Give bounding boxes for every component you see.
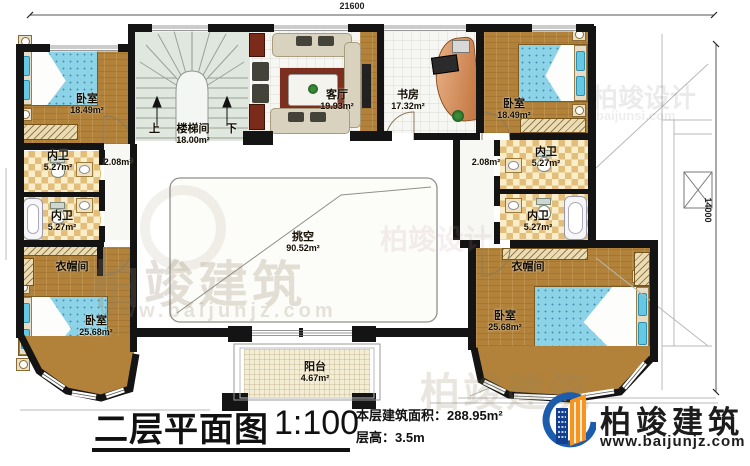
- pillow: [21, 80, 30, 99]
- bed-mattress: [535, 287, 636, 351]
- closet-hatch: [634, 252, 650, 286]
- plan-title: 二层平面图: [94, 402, 269, 451]
- room-area: 90.52m²: [286, 243, 320, 253]
- sofa-cushion: [288, 112, 304, 122]
- bathtub-icon: [23, 198, 43, 240]
- toilet-icon: [536, 198, 551, 219]
- label-void: 挑空 90.52m²: [263, 231, 343, 253]
- floor-hall-left: [104, 144, 131, 240]
- closet-hatch: [22, 258, 34, 286]
- toilet-icon: [50, 156, 65, 177]
- plant-icon: [452, 110, 464, 122]
- closet-hatch: [22, 244, 98, 256]
- pillow: [638, 322, 647, 345]
- plan-scale: 1:100: [274, 404, 359, 443]
- floor-stairwell: [134, 31, 250, 141]
- nightstand: [572, 104, 586, 117]
- floor-hall-right: [460, 140, 494, 240]
- pillow: [21, 56, 30, 75]
- bed-headboard: [636, 287, 649, 351]
- pillow: [638, 293, 647, 316]
- brand-logo-icon: [542, 390, 596, 452]
- closet-hatch: [502, 248, 588, 260]
- bed-top-right: [518, 44, 588, 102]
- floor-height-line: 层高：3.5m: [356, 427, 425, 446]
- sofa-cushion: [318, 36, 334, 46]
- pillow: [21, 329, 30, 350]
- printer-icon: [452, 40, 470, 53]
- nightstand: [632, 354, 646, 367]
- wardrobe-hatch: [520, 118, 586, 133]
- cabinet: [249, 104, 265, 130]
- sink-icon: [76, 162, 93, 177]
- bathtub-icon: [564, 196, 587, 240]
- nightstand: [18, 35, 32, 48]
- bed-mattress: [519, 45, 574, 101]
- tv-icon: [362, 64, 371, 108]
- floorplan-page: 柏竣建筑 www.baijunjz.com 柏竣设计 baijunsi.com …: [0, 0, 750, 466]
- bed-sheet: [32, 297, 71, 355]
- bed-bottom-right: [534, 286, 650, 352]
- watermark-logo-ghost: [140, 185, 226, 271]
- floor-area-line: 本层建筑面积：288.95m²: [356, 405, 503, 424]
- wardrobe-hatch: [18, 124, 78, 140]
- sink-icon: [505, 198, 522, 213]
- nightstand: [16, 358, 30, 371]
- bed-headboard: [19, 51, 32, 105]
- floor-balcony: [244, 349, 370, 397]
- watermark-design: 柏竣设计: [592, 78, 696, 115]
- plant-icon: [308, 84, 318, 94]
- brand-site: www.baijunjz.com: [600, 433, 745, 450]
- cabinet: [249, 33, 265, 57]
- sink-icon: [76, 198, 93, 213]
- sofa-top: [272, 33, 352, 57]
- bed-sheet: [32, 51, 66, 105]
- armchair: [252, 62, 269, 81]
- bed-top-left: [18, 50, 98, 106]
- bed-sheet: [545, 45, 574, 101]
- bed-mattress: [32, 51, 97, 105]
- toilet-icon: [536, 150, 551, 171]
- bed-mattress: [32, 297, 107, 355]
- bed-sheet: [583, 287, 636, 351]
- bed-headboard: [19, 297, 32, 355]
- pillow: [576, 76, 585, 96]
- sofa-cushion: [310, 112, 326, 122]
- title-underline: [92, 448, 350, 452]
- bed-headboard: [574, 45, 587, 101]
- bed-bottom-left: [18, 296, 108, 356]
- pillow: [21, 303, 30, 324]
- watermark-brand-site: www.baijunjz.com: [100, 300, 337, 323]
- room-name: 挑空: [292, 231, 314, 243]
- sofa-cushion: [296, 36, 312, 46]
- nightstand: [18, 108, 32, 121]
- dimension-top: 21600: [330, 1, 374, 11]
- nightstand: [572, 28, 586, 41]
- sink-icon: [505, 158, 522, 173]
- pillow: [576, 51, 585, 71]
- armchair: [252, 84, 269, 103]
- dimension-right: 14000: [703, 190, 713, 230]
- toilet-icon: [50, 202, 65, 223]
- watermark-design-site: baijunsi.com: [596, 108, 675, 123]
- computer-monitor-icon: [431, 54, 459, 74]
